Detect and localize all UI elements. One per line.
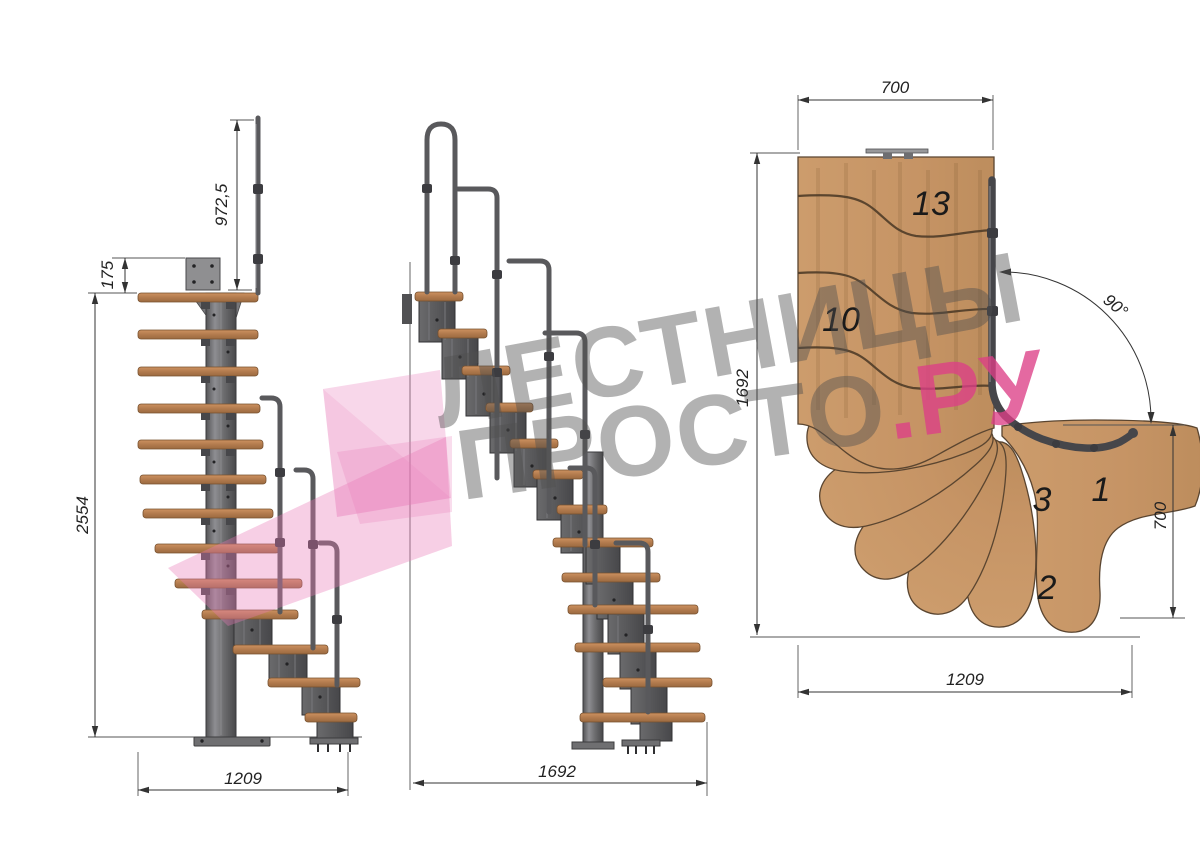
dim-total-height: 2554 bbox=[73, 293, 137, 737]
dim-plate-offset: 175 bbox=[98, 258, 185, 293]
front-foot bbox=[622, 740, 660, 746]
dim-label-2554: 2554 bbox=[73, 496, 92, 535]
dim-label-plan-1209: 1209 bbox=[946, 670, 984, 689]
handrail-loop bbox=[427, 124, 455, 292]
step-number-2: 2 bbox=[1037, 569, 1057, 607]
front-base-plate bbox=[572, 742, 614, 749]
staircase-drawing: 2554 175 972,5 1209 bbox=[0, 0, 1200, 849]
step-number-3: 3 bbox=[1033, 481, 1052, 519]
step-number-13: 13 bbox=[912, 185, 950, 223]
dim-plan-top-width: 700 bbox=[798, 78, 993, 150]
dim-label-90deg: 90° bbox=[1100, 290, 1132, 321]
dim-plan-bottom-width: 1209 bbox=[798, 645, 1132, 698]
staircase-drawing-page: 2554 175 972,5 1209 bbox=[0, 0, 1200, 849]
side-elevation-view: 2554 175 972,5 1209 bbox=[73, 118, 362, 796]
module-foot bbox=[310, 738, 358, 744]
dim-side-base-width: 1209 bbox=[138, 752, 348, 796]
column-base-plate bbox=[194, 737, 270, 746]
dim-label-side-1209: 1209 bbox=[224, 769, 262, 788]
watermark-line2-pink: .РУ bbox=[878, 328, 1053, 461]
dim-label-175: 175 bbox=[98, 260, 117, 289]
dim-label-972-5: 972,5 bbox=[212, 183, 231, 226]
dim-label-700-right: 700 bbox=[1151, 501, 1170, 530]
wall-bracket bbox=[402, 294, 412, 324]
handrail-end-cap bbox=[1128, 428, 1138, 438]
step-number-1: 1 bbox=[1092, 471, 1111, 509]
dim-label-700-top: 700 bbox=[881, 78, 910, 97]
dim-label-front-1692: 1692 bbox=[538, 762, 576, 781]
